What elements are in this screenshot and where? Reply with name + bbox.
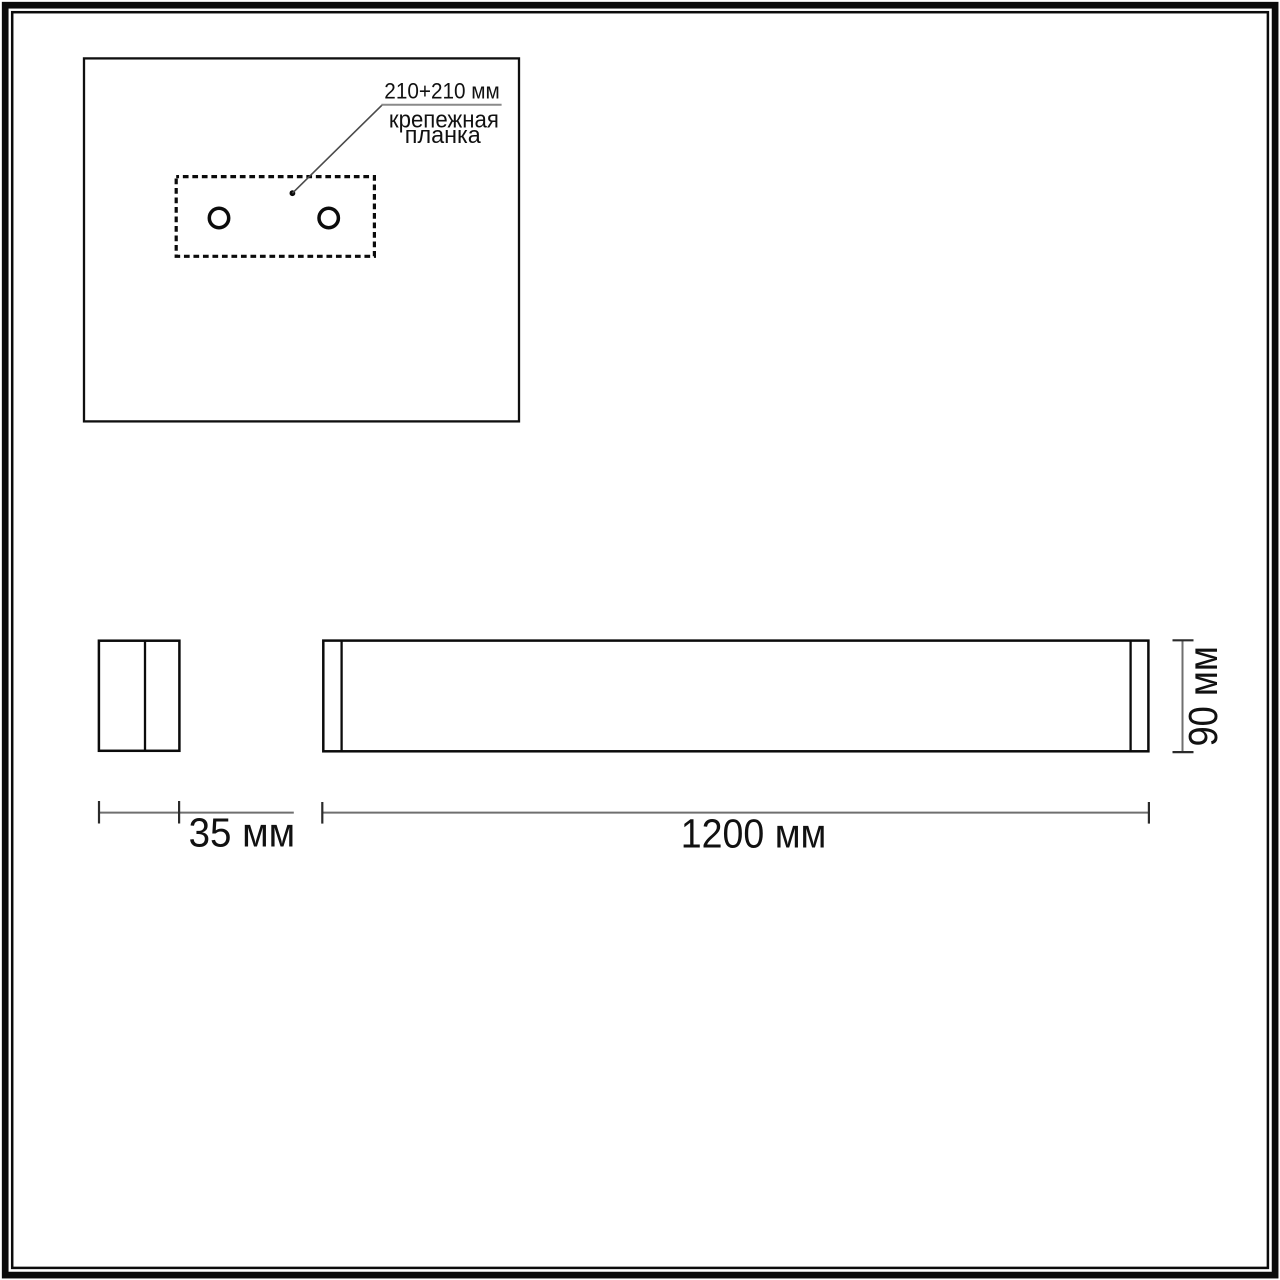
svg-text:35 мм: 35 мм (189, 810, 296, 856)
svg-text:1200 мм: 1200 мм (681, 811, 827, 857)
svg-text:210+210 мм: 210+210 мм (384, 79, 500, 104)
svg-text:90 мм: 90 мм (1180, 646, 1226, 746)
svg-text:планка: планка (405, 122, 482, 149)
